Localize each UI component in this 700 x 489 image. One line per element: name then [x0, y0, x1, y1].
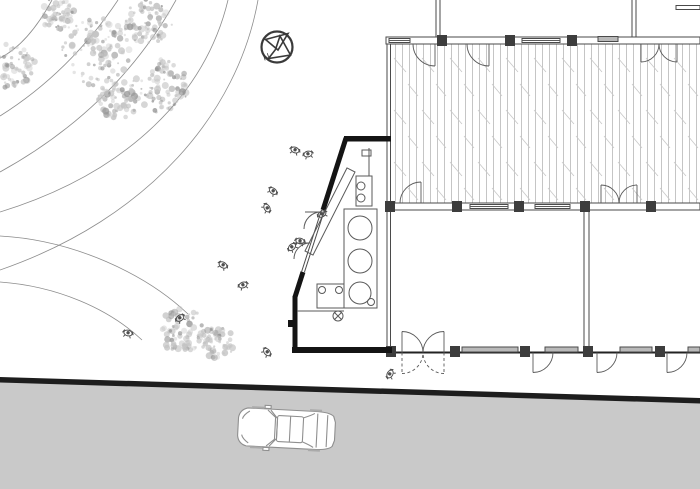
- person-figure: [237, 280, 250, 291]
- car: [237, 404, 336, 454]
- kiosk-angled-wall: [323, 138, 346, 210]
- small-circle: [368, 299, 375, 306]
- fixture-knob: [357, 182, 365, 190]
- window-sill: [598, 37, 618, 42]
- person-figure: [260, 346, 273, 359]
- person-figure: [216, 260, 229, 272]
- door-swing: [667, 353, 687, 373]
- bush: [160, 306, 206, 352]
- window-sill: [545, 347, 578, 352]
- sink-knob: [336, 287, 343, 294]
- car-mirror: [265, 405, 271, 408]
- bush: [201, 326, 236, 361]
- column: [385, 201, 395, 212]
- kiosk-top-wall: [344, 136, 391, 142]
- kiosk-angled-wall: [295, 272, 303, 297]
- person-figure: [302, 150, 315, 160]
- column: [505, 35, 515, 46]
- window-sill: [688, 347, 700, 352]
- counter-circle: [348, 249, 372, 273]
- interior-partition: [584, 210, 589, 347]
- wall-stub: [676, 6, 700, 10]
- column: [520, 346, 530, 357]
- window-sill: [462, 347, 518, 352]
- tree-canopy: [0, 42, 38, 90]
- butterfly-door-leaf: [423, 332, 444, 353]
- fixture-cap: [362, 150, 371, 156]
- site-plan: N: [0, 0, 700, 489]
- person-figure: [316, 209, 329, 221]
- person-figure: [260, 202, 272, 215]
- tree-canopy: [41, 0, 78, 32]
- person-figure: [288, 145, 301, 156]
- column: [567, 35, 577, 46]
- sink-knob: [319, 287, 326, 294]
- kiosk-notch: [288, 320, 295, 327]
- north-arrow: N: [262, 32, 293, 63]
- butterfly-door-dashed: [402, 353, 423, 374]
- kiosk-bottom-wall: [292, 347, 392, 353]
- deck-hatch-area: [391, 44, 700, 203]
- butterfly-door-leaf: [402, 332, 423, 353]
- sink-unit: [317, 284, 344, 308]
- person-figure: [385, 368, 397, 381]
- column: [452, 201, 462, 212]
- tree-canopy: [96, 79, 137, 120]
- column: [655, 346, 665, 357]
- butterfly-door-dashed: [423, 353, 444, 374]
- fixture-knob: [357, 194, 365, 202]
- road: [0, 377, 700, 489]
- door-swing: [597, 353, 617, 373]
- person-figure: [121, 329, 134, 339]
- column: [437, 35, 447, 46]
- contour-line: [0, 236, 188, 314]
- column: [450, 346, 460, 357]
- window-sill: [620, 347, 652, 352]
- car-body: [237, 407, 336, 450]
- counter-circle: [348, 216, 372, 240]
- column: [583, 346, 593, 357]
- contour-line: [0, 0, 258, 270]
- north-label: N: [262, 51, 271, 63]
- contour-line: [0, 282, 142, 340]
- tree-canopy: [131, 57, 189, 113]
- column: [580, 201, 590, 212]
- site-plan-canvas: N: [0, 0, 700, 489]
- tree-group: [0, 0, 236, 361]
- people-group: [121, 145, 396, 381]
- main-building: [385, 0, 700, 357]
- column: [514, 201, 524, 212]
- column: [646, 201, 656, 212]
- person-figure: [266, 185, 279, 198]
- car-mirror: [263, 447, 269, 450]
- tree-canopy: [124, 0, 173, 44]
- door-swing: [533, 353, 553, 373]
